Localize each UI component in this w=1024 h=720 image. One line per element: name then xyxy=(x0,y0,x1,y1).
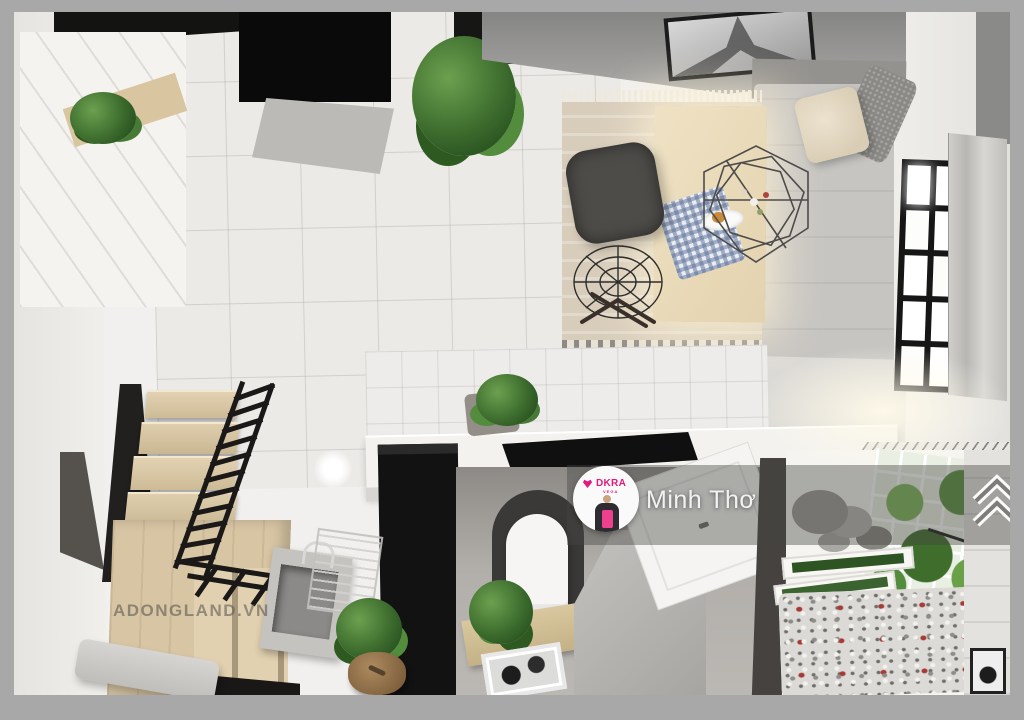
window-pane xyxy=(905,210,929,250)
niche-plant xyxy=(70,92,136,144)
brand-logo-subtext: VEGA xyxy=(603,489,618,494)
wardrobe-cabinet xyxy=(20,32,186,307)
agent-photo-apron xyxy=(602,510,613,528)
wire-mesh-chair xyxy=(562,234,674,334)
dining-chair-dark xyxy=(563,139,668,247)
rug-fringe-top xyxy=(562,90,762,102)
site-watermark: ADONGLAND.VN xyxy=(113,601,270,621)
bathroom-plant xyxy=(469,580,533,644)
mat-print xyxy=(489,650,559,693)
window-pane xyxy=(902,301,926,341)
leaning-framed-print xyxy=(970,648,1006,694)
flower-bed xyxy=(778,587,978,695)
right-corner-panel xyxy=(976,12,1010,144)
render-photo: ADONGLAND.VN DKRA VEGA Minh Thơ xyxy=(14,12,1010,695)
counter-plant xyxy=(476,374,538,426)
window-pane xyxy=(906,165,930,205)
agent-avatar: DKRA VEGA xyxy=(573,466,639,532)
planter-greens xyxy=(792,553,904,573)
wood-stool xyxy=(348,652,406,695)
window-pane xyxy=(903,255,927,295)
agent-photo-head xyxy=(603,495,611,503)
brand-logo-text: DKRA xyxy=(596,478,626,489)
agent-name: Minh Thơ xyxy=(646,486,756,515)
wire-pendant-centerpiece xyxy=(676,140,836,270)
screenshot-frame: ADONGLAND.VN DKRA VEGA Minh Thơ xyxy=(0,0,1024,720)
stool-handle-slot xyxy=(368,664,386,676)
double-chevron-up-icon xyxy=(969,474,1010,534)
dkra-heart-logo-icon xyxy=(583,479,592,488)
sink-plant xyxy=(336,598,402,660)
wall-light-glow xyxy=(314,450,352,488)
tv-screen xyxy=(239,12,391,102)
